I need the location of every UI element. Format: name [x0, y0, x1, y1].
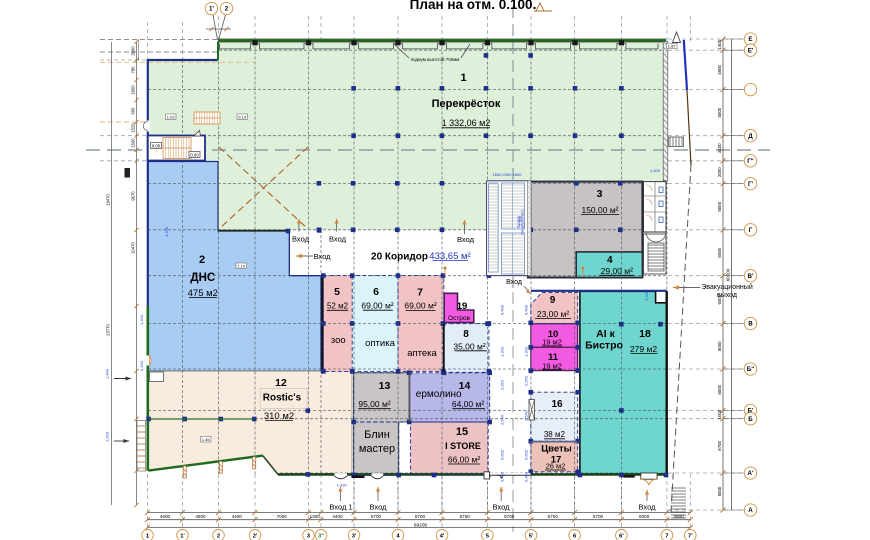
svg-text:23770: 23770 — [106, 324, 111, 336]
svg-text:5700: 5700 — [593, 514, 604, 519]
svg-text:2800: 2800 — [673, 514, 684, 519]
svg-text:26 м2: 26 м2 — [546, 462, 566, 471]
svg-text:35,00 м²: 35,00 м² — [453, 341, 485, 351]
svg-text:Вход: Вход — [506, 279, 522, 286]
svg-text:500: 500 — [130, 107, 135, 115]
svg-text:Вход: Вход — [457, 235, 475, 244]
svg-text:2,950: 2,950 — [500, 379, 505, 390]
svg-text:Б": Б" — [747, 366, 754, 373]
svg-text:0,400: 0,400 — [500, 471, 505, 482]
svg-text:подиум высотой 700мм: подиум высотой 700мм — [411, 56, 460, 62]
svg-text:6,400: 6,400 — [500, 304, 505, 315]
svg-text:18: 18 — [639, 328, 651, 340]
svg-text:Перекрёсток: Перекрёсток — [432, 98, 501, 110]
svg-text:Г: Г — [749, 227, 753, 234]
svg-text:Г": Г" — [747, 158, 754, 165]
svg-text:5000: 5000 — [717, 486, 722, 496]
svg-text:Блин: Блин — [364, 429, 390, 441]
svg-text:0.00: 0.00 — [152, 143, 161, 148]
svg-text:2,950: 2,950 — [524, 375, 529, 386]
svg-text:6: 6 — [373, 286, 379, 298]
svg-text:3100: 3100 — [717, 143, 722, 153]
svg-text:Вход: Вход — [314, 252, 332, 261]
svg-text:5700: 5700 — [548, 514, 559, 519]
svg-text:1400: 1400 — [717, 39, 722, 49]
svg-text:Д: Д — [748, 133, 753, 140]
svg-text:1,400: 1,400 — [650, 168, 661, 173]
svg-text:1800: 1800 — [130, 85, 135, 95]
svg-text:1,200: 1,200 — [524, 346, 529, 357]
svg-text:13: 13 — [379, 380, 391, 392]
svg-text:1520: 1520 — [130, 123, 135, 133]
svg-text:Г': Г' — [748, 181, 754, 188]
svg-text:2: 2 — [217, 534, 220, 540]
svg-text:69200: 69200 — [414, 522, 428, 528]
svg-text:10470: 10470 — [130, 242, 135, 254]
svg-text:4600: 4600 — [160, 514, 171, 519]
svg-text:1.03: 1.03 — [167, 114, 176, 119]
svg-text:66,00 м²: 66,00 м² — [448, 455, 480, 465]
svg-text:279 м2: 279 м2 — [630, 344, 657, 354]
svg-text:12: 12 — [275, 377, 287, 389]
svg-text:0,400: 0,400 — [524, 471, 529, 482]
svg-text:7: 7 — [417, 287, 423, 299]
svg-text:Е: Е — [748, 36, 752, 43]
svg-text:5': 5' — [529, 534, 534, 540]
svg-text:60000: 60000 — [726, 268, 731, 281]
svg-text:69,00 м²: 69,00 м² — [404, 301, 436, 311]
svg-text:1300: 1300 — [310, 514, 321, 519]
svg-text:15: 15 — [456, 426, 468, 438]
svg-text:20 Коридор: 20 Коридор — [371, 252, 428, 263]
svg-text:95,00 м²: 95,00 м² — [358, 399, 390, 409]
svg-text:2: 2 — [199, 254, 205, 266]
svg-text:А': А' — [748, 470, 754, 477]
svg-text:2: 2 — [225, 6, 229, 13]
svg-text:4900: 4900 — [717, 64, 722, 74]
svg-text:19 м2: 19 м2 — [542, 361, 562, 370]
svg-text:1650: 1650 — [493, 172, 503, 177]
svg-text:5700: 5700 — [415, 514, 426, 519]
svg-text:5 500: 5 500 — [518, 215, 523, 226]
svg-text:Вход: Вход — [493, 503, 511, 512]
svg-text:Вход: Вход — [639, 503, 657, 512]
svg-text:Б: Б — [748, 416, 753, 423]
svg-text:Эвакуационный: Эвакуационный — [701, 283, 753, 291]
svg-text:1,200: 1,200 — [139, 314, 144, 325]
svg-text:2000: 2000 — [717, 167, 722, 177]
svg-text:Е': Е' — [748, 47, 754, 54]
svg-text:4400: 4400 — [332, 514, 343, 519]
svg-text:2,540: 2,540 — [524, 410, 529, 421]
svg-text:29,00 м²: 29,00 м² — [601, 266, 633, 276]
svg-text:2': 2' — [253, 534, 258, 540]
svg-text:3: 3 — [597, 188, 603, 200]
svg-text:Бистро: Бистро — [585, 340, 623, 352]
svg-text:7000: 7000 — [277, 514, 288, 519]
svg-text:6,500: 6,500 — [524, 449, 529, 460]
svg-text:69,00 м²: 69,00 м² — [361, 300, 393, 310]
svg-text:7': 7' — [688, 534, 693, 540]
svg-text:9670: 9670 — [130, 191, 135, 201]
svg-text:В: В — [748, 321, 753, 328]
svg-text:5,440: 5,440 — [139, 360, 144, 371]
svg-text:6000: 6000 — [717, 247, 722, 257]
svg-text:64,00 м²: 64,00 м² — [452, 399, 484, 409]
svg-text:План на отм. 0.100.: План на отм. 0.100. — [410, 0, 537, 12]
svg-text:0.10: 0.10 — [238, 114, 247, 119]
svg-text:1,200: 1,200 — [105, 431, 110, 442]
svg-text:6': 6' — [619, 534, 624, 540]
svg-text:ДНС: ДНС — [190, 272, 215, 284]
svg-text:Вход 1: Вход 1 — [329, 503, 352, 512]
svg-text:1650: 1650 — [513, 172, 523, 177]
svg-text:Вход: Вход — [370, 503, 388, 512]
svg-text:23,00 м²: 23,00 м² — [537, 309, 569, 319]
svg-text:4500: 4500 — [195, 514, 206, 519]
svg-text:9: 9 — [550, 295, 556, 306]
svg-text:19 м2: 19 м2 — [542, 338, 562, 347]
svg-text:150,00 м²: 150,00 м² — [581, 205, 618, 215]
svg-text:5000: 5000 — [717, 384, 722, 394]
svg-text:1500: 1500 — [130, 138, 135, 148]
svg-text:780: 780 — [130, 66, 135, 74]
svg-text:аптека: аптека — [407, 348, 437, 359]
svg-text:1,200: 1,200 — [164, 226, 169, 237]
svg-text:Остров: Остров — [448, 315, 471, 322]
svg-text:I STORE: I STORE — [445, 441, 481, 451]
svg-text:1': 1' — [209, 6, 214, 13]
svg-text:6,500: 6,500 — [500, 449, 505, 460]
svg-text:4400: 4400 — [232, 514, 243, 519]
svg-text:52 м2: 52 м2 — [327, 302, 349, 311]
svg-text:1': 1' — [180, 534, 185, 540]
svg-text:16: 16 — [551, 399, 563, 410]
svg-text:зоо: зоо — [331, 335, 346, 346]
svg-text:1.87: 1.87 — [668, 44, 677, 49]
svg-text:1 332,06 м2: 1 332,06 м2 — [442, 118, 491, 128]
svg-text:8: 8 — [463, 329, 469, 340]
svg-text:оптика: оптика — [365, 338, 395, 349]
svg-text:1,200: 1,200 — [500, 346, 505, 357]
svg-text:ермолино: ермолино — [416, 389, 462, 400]
svg-text:5700: 5700 — [504, 514, 515, 519]
svg-text:1: 1 — [460, 72, 466, 84]
svg-text:2,540: 2,540 — [500, 414, 505, 425]
svg-text:6,400: 6,400 — [524, 304, 529, 315]
svg-text:5700: 5700 — [460, 514, 471, 519]
svg-text:Вход: Вход — [329, 235, 347, 244]
svg-text:Цветы: Цветы — [541, 443, 572, 454]
svg-text:1,440: 1,440 — [105, 368, 110, 379]
svg-text:мастер: мастер — [359, 443, 395, 455]
svg-text:19: 19 — [457, 301, 468, 312]
svg-text:2800: 2800 — [130, 46, 135, 56]
svg-text:1.45: 1.45 — [202, 437, 211, 442]
svg-text:AI к: AI к — [596, 328, 615, 340]
svg-text:0.00: 0.00 — [190, 152, 199, 157]
svg-text:А: А — [748, 507, 753, 514]
svg-text:4: 4 — [607, 255, 613, 266]
svg-text:19470: 19470 — [106, 194, 111, 206]
svg-text:1000: 1000 — [717, 409, 722, 419]
svg-text:2000: 2000 — [503, 172, 513, 177]
svg-text:5: 5 — [334, 286, 340, 298]
svg-text:3': 3' — [352, 534, 357, 540]
svg-text:1.10: 1.10 — [237, 263, 246, 268]
svg-text:6000: 6000 — [717, 294, 722, 304]
svg-text:8750: 8750 — [717, 440, 722, 450]
svg-text:Rostic's: Rostic's — [263, 393, 302, 404]
svg-text:Вход: Вход — [292, 235, 310, 244]
svg-text:38 м2: 38 м2 — [544, 430, 566, 439]
svg-text:5700: 5700 — [371, 514, 382, 519]
svg-text:1,200: 1,200 — [644, 290, 649, 301]
svg-text:3'': 3'' — [318, 534, 325, 540]
svg-text:В': В' — [748, 273, 754, 280]
svg-text:7: 7 — [665, 534, 668, 540]
svg-text:8000: 8000 — [717, 201, 722, 211]
svg-text:5000: 5000 — [717, 107, 722, 117]
svg-text:6000: 6000 — [717, 341, 722, 351]
svg-text:-1,990: -1,990 — [335, 483, 347, 488]
svg-text:4': 4' — [440, 534, 445, 540]
svg-text:6000: 6000 — [639, 514, 650, 519]
